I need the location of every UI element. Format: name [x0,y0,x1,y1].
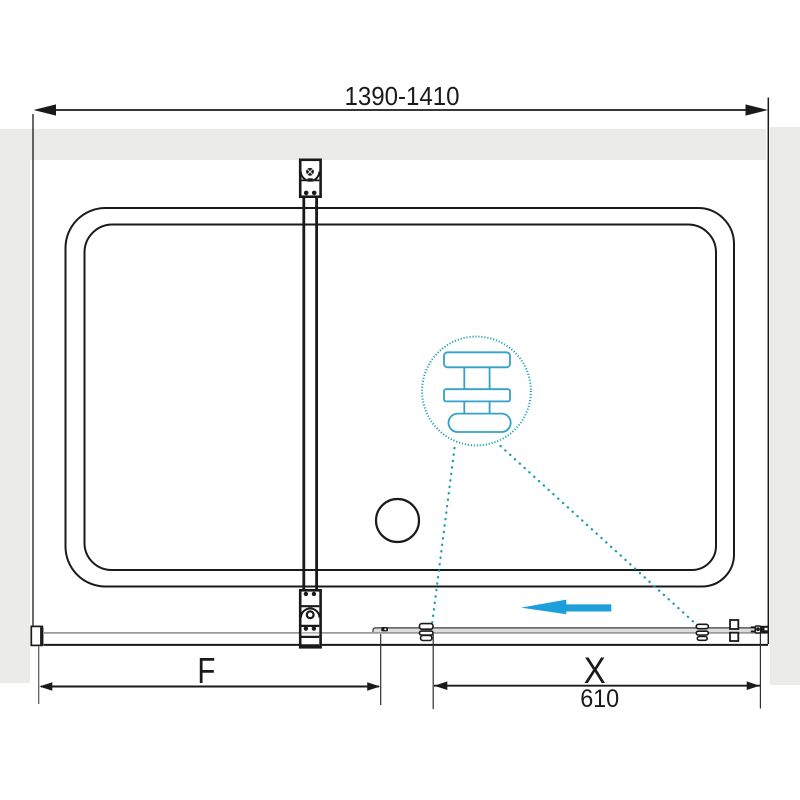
svg-text:610: 610 [580,685,619,713]
svg-text:F: F [197,650,215,691]
svg-text:1390-1410: 1390-1410 [345,81,460,111]
